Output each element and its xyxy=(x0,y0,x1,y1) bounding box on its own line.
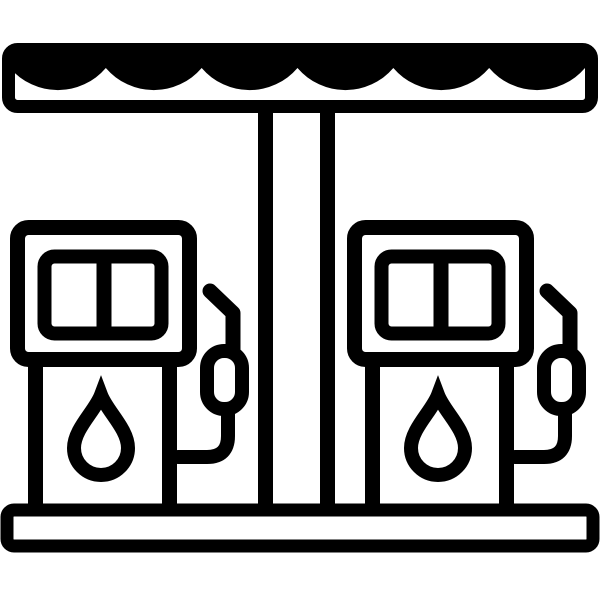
nozzle-spout xyxy=(210,291,233,349)
nozzle-handle-ring xyxy=(207,351,242,409)
canopy-awning-icon xyxy=(8,46,592,107)
gas-station-icon xyxy=(0,0,600,600)
fuel-pump-right-copy xyxy=(355,228,580,506)
fuel-drop-icon xyxy=(74,395,128,475)
support-pillar-icon xyxy=(266,110,328,506)
fuel-pump-left-icon xyxy=(18,228,243,506)
ground-platform xyxy=(7,510,593,546)
canopy-scallops xyxy=(8,46,592,90)
icon-canvas xyxy=(0,0,600,600)
fuel-pump-right-icon xyxy=(355,228,580,506)
